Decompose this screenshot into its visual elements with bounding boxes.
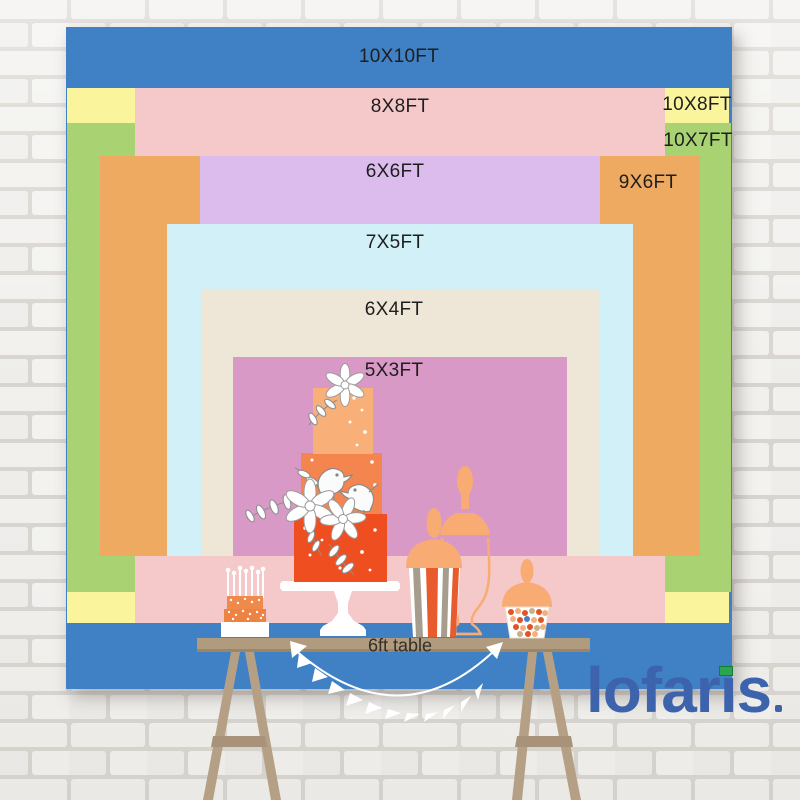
tiered-cake-icon xyxy=(244,364,400,637)
candy-jar-icon xyxy=(502,559,552,638)
product-image: 10X10FT 10X8FT 10X7FT 8X8FT 9X6FT 6X6FT … xyxy=(0,0,800,800)
logo-letter-i: ı xyxy=(720,658,737,722)
trestle-left-icon xyxy=(203,652,281,800)
size-label-7x5ft: 7X5FT xyxy=(366,232,425,254)
logo-text-pre: lofar xyxy=(586,654,720,726)
size-label-6x6ft: 6X6FT xyxy=(366,161,425,183)
logo-green-mark-icon xyxy=(719,666,733,676)
size-label-6x4ft: 6X4FT xyxy=(365,299,424,321)
size-label-10x7ft: 10X7FT xyxy=(663,130,732,152)
logo-trademark-dot xyxy=(775,705,782,712)
size-label-10x10ft: 10X10FT xyxy=(359,46,439,68)
size-label-5x3ft: 5X3FT xyxy=(365,360,424,382)
table-size-label: 6ft table xyxy=(368,636,432,657)
size-label-8x8ft: 8X8FT xyxy=(371,96,430,118)
size-label-10x8ft: 10X8FT xyxy=(662,94,731,116)
logo-text-post: s xyxy=(736,654,771,726)
trestle-right-icon xyxy=(512,652,581,800)
size-label-9x6ft: 9X6FT xyxy=(619,172,678,194)
mini-cake-icon xyxy=(221,566,269,637)
lofaris-logo: lofarıs xyxy=(586,658,782,722)
